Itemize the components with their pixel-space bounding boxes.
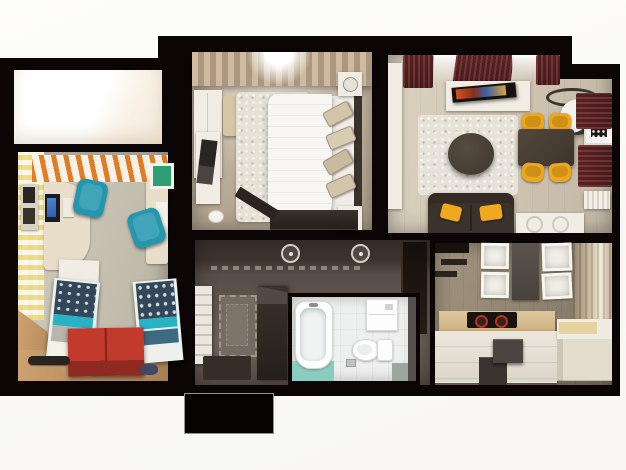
white-island <box>557 319 612 381</box>
lamp-icon <box>343 77 358 92</box>
toilet-tank <box>377 339 393 361</box>
white-radiator <box>584 191 610 209</box>
yellow-pillow <box>479 204 503 222</box>
step-upper <box>493 339 523 363</box>
navy-blanket <box>136 280 177 319</box>
living-room <box>388 55 612 233</box>
ceiling-light-icon <box>351 244 370 263</box>
toilet-seat <box>357 344 372 355</box>
circle-motif-icon <box>552 216 569 233</box>
open-cabinet <box>481 243 509 269</box>
monitor-screen <box>47 198 56 217</box>
cabinet-line <box>369 314 395 315</box>
open-cabinet <box>481 272 509 298</box>
bedroom-window-light <box>248 52 310 84</box>
yellow-chair <box>521 162 544 182</box>
bathroom <box>288 293 420 385</box>
kids-room <box>18 152 168 381</box>
round-coffee-table <box>448 133 494 175</box>
tv-screen <box>456 85 507 99</box>
dark-doormat <box>203 356 251 380</box>
magazine <box>196 139 217 185</box>
wall-shelf-books <box>21 184 38 230</box>
wardrobe-top-face <box>257 286 287 304</box>
black-wall-shelf <box>435 243 469 253</box>
teal-blanket-stripe <box>139 316 178 329</box>
black-wall-shelf <box>435 271 457 277</box>
slipper <box>140 364 158 375</box>
double-bed <box>268 90 362 222</box>
books-icon <box>23 187 35 203</box>
open-cabinet <box>542 242 573 271</box>
grey-mat <box>392 363 408 381</box>
burner-icon <box>495 315 508 328</box>
soap-items-icon <box>385 304 393 310</box>
navy-blanket <box>54 280 97 318</box>
black-wall-shelf <box>441 259 467 265</box>
island-body <box>557 339 612 381</box>
left-wall-panel <box>388 63 402 209</box>
tv <box>451 82 516 103</box>
toilet <box>352 337 394 361</box>
monitor <box>45 194 60 222</box>
white-ladder-shelf <box>195 286 212 364</box>
burner-icon <box>475 315 488 328</box>
runner-rug <box>219 295 257 357</box>
yellow-pillow <box>439 203 462 222</box>
entrance-stub <box>184 393 274 434</box>
step-stool <box>479 339 523 385</box>
runner-rug-inner <box>226 304 248 346</box>
curtain-top-right <box>536 55 560 85</box>
red-storage-chest <box>68 327 145 376</box>
ceiling-light-icon <box>281 244 300 263</box>
skateboard <box>28 356 70 365</box>
right-wall-strip <box>408 297 416 381</box>
white-cup <box>208 210 224 223</box>
dark-sofa <box>428 193 514 233</box>
bathtub <box>295 301 333 369</box>
circle-motif-icon <box>526 216 543 233</box>
blue-pad <box>140 328 179 345</box>
tub-basin <box>300 308 326 361</box>
island-mat <box>559 322 597 334</box>
office-chair-teal-1 <box>72 177 110 219</box>
curtain-top-left <box>403 55 433 88</box>
curtain-right-lower <box>578 145 612 187</box>
orange-slat-blinds <box>32 155 168 182</box>
chest-split-line <box>105 328 108 361</box>
wall-cabinet <box>366 299 398 331</box>
nightstand-top <box>338 72 362 96</box>
books-icon <box>23 208 35 224</box>
dark-tall-cabinet <box>512 243 539 300</box>
dining-table <box>518 129 574 166</box>
yellow-chair <box>548 162 571 182</box>
sofa-cushion-line <box>470 205 472 231</box>
curtain-right-upper <box>576 93 612 129</box>
open-cabinet <box>541 272 572 300</box>
window-light <box>512 55 538 81</box>
master-bedroom <box>192 52 372 230</box>
white-console <box>196 132 220 204</box>
balcony <box>14 70 162 144</box>
dark-dresser <box>270 210 358 230</box>
drain-item-icon <box>346 359 356 367</box>
apartment-floorplan-render <box>0 0 626 470</box>
faucet-icon <box>309 303 318 307</box>
green-pin-board <box>150 163 174 189</box>
kitchen <box>435 243 612 385</box>
black-cooktop <box>467 312 517 328</box>
tv-console <box>446 81 530 111</box>
toilet-bowl <box>352 339 380 361</box>
dashed-floor-trim <box>211 266 361 270</box>
white-sideboard <box>516 213 584 233</box>
dark-wardrobe <box>257 286 287 380</box>
